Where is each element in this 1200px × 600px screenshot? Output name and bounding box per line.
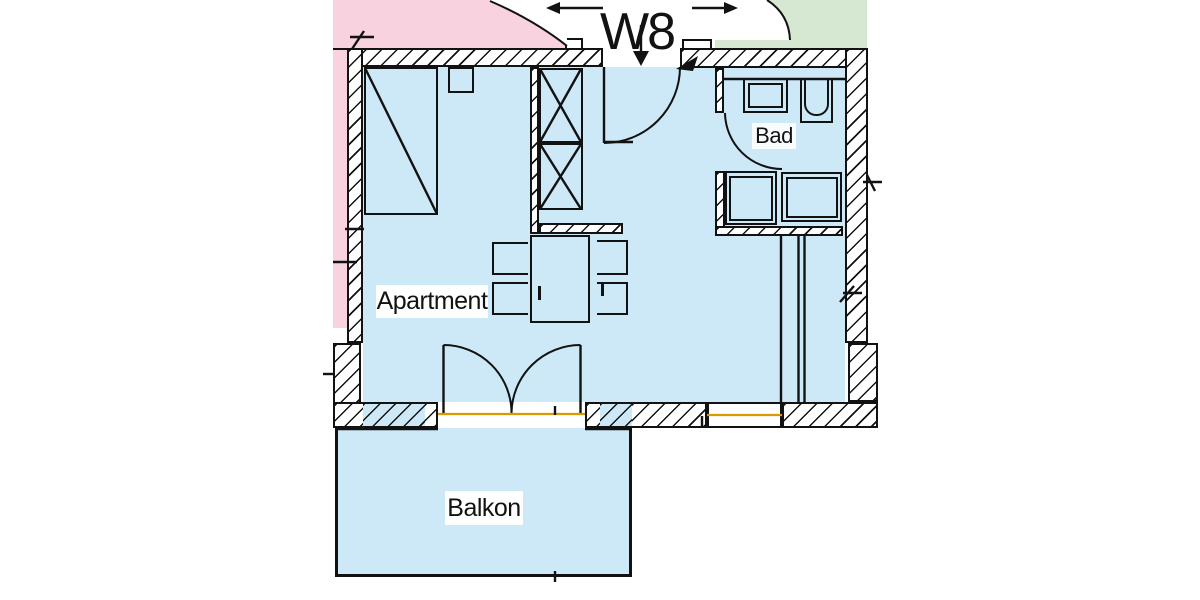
room-label-balkon: Balkon	[445, 491, 523, 525]
left-wall-upper	[347, 48, 363, 343]
washer-inner	[786, 177, 838, 218]
entry-jamb-notch-right	[682, 39, 712, 48]
entry-jamb-notch-left	[565, 38, 583, 48]
chair-tick	[601, 283, 604, 296]
kitchen-wall-strip	[539, 223, 623, 234]
neighbor-unit-left-strip	[333, 48, 347, 328]
sink-inner	[748, 83, 783, 108]
wardrobe-box-bottom	[539, 143, 583, 210]
bath-partial-wall	[715, 68, 724, 113]
table-tick	[538, 286, 541, 300]
right-wall-upper	[845, 48, 868, 343]
floor-plan-canvas: W8 Apartment Bad Balkon	[0, 0, 1200, 600]
unit-label: W8	[600, 2, 674, 62]
bed	[364, 67, 438, 215]
toilet-bowl	[804, 78, 829, 116]
top-wall-left	[347, 48, 603, 67]
bath-shower-side-wall	[715, 171, 725, 228]
bottom-wall-left-corner	[333, 402, 365, 428]
chair-bottom-left	[492, 282, 528, 315]
neighbor-unit-right-band	[715, 0, 867, 48]
neighbor-unit-left-band	[333, 0, 567, 48]
top-wall-right	[680, 48, 868, 68]
room-label-bad: Bad	[752, 123, 796, 149]
bottom-wall-left-end	[425, 402, 438, 428]
bottom-wall-right	[782, 402, 878, 428]
wardrobe-side-wall	[530, 67, 539, 234]
chair-top-right	[597, 240, 628, 275]
bottom-wall-mid-over-balcony	[600, 402, 632, 428]
right-wall-lower	[848, 343, 878, 402]
room-label-apartment: Apartment	[376, 285, 488, 318]
bottom-wall-mid-end	[632, 402, 707, 428]
left-wall-lower	[333, 343, 361, 404]
shower-inner	[729, 176, 773, 221]
bottom-wall-left-over-balcony	[363, 402, 425, 428]
wardrobe-box-top	[539, 68, 583, 143]
chair-top-left	[492, 242, 528, 275]
dining-table	[530, 235, 590, 323]
window	[707, 402, 782, 428]
bath-bottom-strip	[715, 226, 843, 236]
nightstand	[448, 67, 474, 93]
